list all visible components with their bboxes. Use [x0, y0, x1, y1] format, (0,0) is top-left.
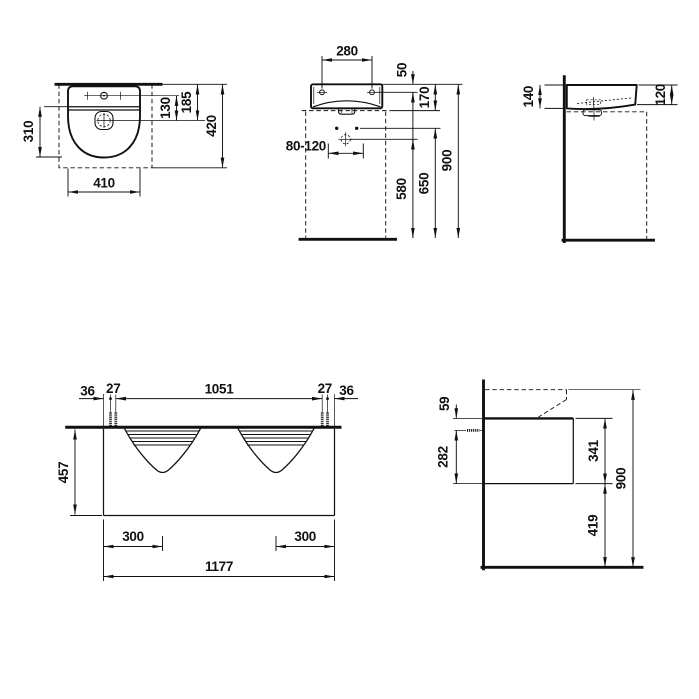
dim-50-580: 50 580 [394, 63, 413, 238]
dim-label-282: 282 [436, 446, 451, 468]
dim-label-580: 580 [394, 178, 409, 200]
washbasin-front-view: 280 50 580 170 650 900 80-120 [286, 44, 463, 240]
dim-900-vanity: 900 [569, 390, 641, 568]
washbasin-top-view: 310 410 130 185 420 [21, 84, 227, 196]
dim-label-140: 140 [521, 86, 536, 108]
dim-label-27-right: 27 [318, 381, 332, 396]
basin-inner-curve [313, 101, 381, 107]
dim-280: 280 [322, 44, 372, 89]
dim-341-419: 341 419 [576, 418, 613, 567]
dim-label-50: 50 [395, 63, 410, 77]
dim-label-36-left: 36 [80, 384, 95, 399]
dim-310: 310 [21, 107, 68, 157]
dim-label-280: 280 [336, 44, 358, 59]
dim-label-170: 170 [417, 87, 432, 109]
basin-hidden-outline [485, 390, 567, 417]
anchor-dot [335, 127, 338, 130]
vanity-front-view: 36 27 1051 27 36 457 300 300 1177 [56, 381, 358, 581]
basin-profile [567, 85, 637, 109]
dim-label-419: 419 [586, 515, 601, 537]
dim-label-410: 410 [93, 176, 115, 191]
dim-130-185-420: 130 185 420 [152, 84, 227, 168]
dim-label-80-120: 80-120 [286, 139, 326, 154]
dim-900-basin: 900 [440, 84, 459, 238]
dim-457: 457 [56, 430, 102, 516]
dim-label-1051: 1051 [205, 381, 235, 396]
dim-label-59: 59 [437, 397, 452, 411]
dim-59-282: 59 282 [436, 397, 457, 484]
vanity-side-view: 59 282 341 419 900 [436, 381, 643, 569]
install-zone-dashed [59, 84, 152, 168]
dim-140: 140 [521, 85, 566, 108]
dim-label-341: 341 [586, 439, 601, 461]
technical-drawing-canvas: 310 410 130 185 420 [0, 0, 699, 699]
dim-label-300-left: 300 [122, 529, 144, 544]
dim-label-36-right: 36 [339, 383, 354, 398]
washbasin-side-view: 140 120 [521, 77, 678, 242]
dim-label-185: 185 [179, 91, 194, 113]
dim-label-1177: 1177 [205, 559, 233, 574]
basin-cutout [238, 429, 314, 473]
waste-outlet-symbol [339, 132, 353, 146]
drawing-sheet: 310 410 130 185 420 [0, 0, 699, 699]
dim-120: 120 [637, 84, 678, 106]
anchor-dot [355, 127, 358, 130]
dim-300-pair: 300 300 [104, 529, 335, 551]
dim-label-27-left: 27 [106, 381, 120, 396]
fixing-screws [111, 395, 328, 427]
dim-label-120: 120 [653, 84, 668, 106]
dim-label-420: 420 [204, 115, 219, 137]
basin-cutout [125, 429, 201, 473]
drain-stub [583, 110, 602, 116]
dim-410: 410 [68, 169, 140, 197]
dim-label-650: 650 [417, 173, 432, 195]
dim-170-650: 170 650 [417, 84, 436, 238]
dim-label-300-right: 300 [294, 529, 316, 544]
dim-label-130: 130 [158, 97, 173, 119]
dim-label-900-vanity: 900 [614, 468, 629, 490]
dim-label-457: 457 [56, 462, 71, 484]
dim-label-310: 310 [21, 121, 36, 143]
dim-label-900: 900 [440, 150, 455, 172]
dim-chain-top: 36 27 1051 27 36 [79, 381, 358, 426]
mounting-holes [317, 90, 377, 95]
dim-80-120: 80-120 [286, 139, 364, 159]
